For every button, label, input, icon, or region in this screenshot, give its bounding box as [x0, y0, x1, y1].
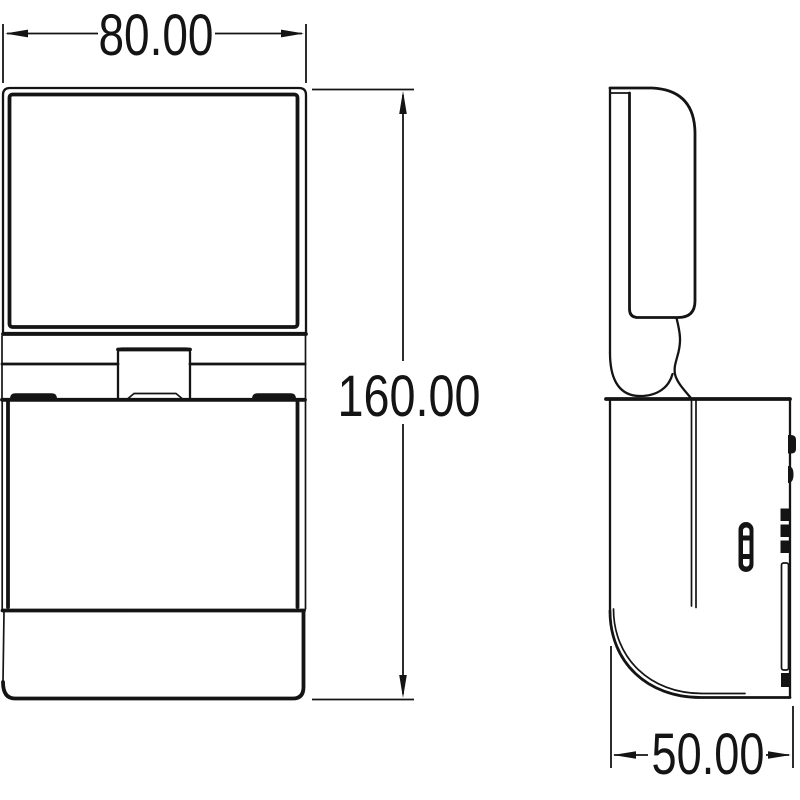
- depth-dim-label: 50.00: [652, 722, 765, 787]
- rear-notch-1: [781, 509, 790, 522]
- rear-rib: [782, 563, 789, 670]
- width-arrow-right: [281, 30, 304, 38]
- height-arrow-top: [399, 91, 407, 114]
- dimension-height: 160.00: [312, 90, 481, 700]
- hinge-tab: [118, 349, 190, 400]
- dimension-depth: 50.00: [611, 646, 793, 787]
- rear-block: [781, 673, 790, 687]
- height-arrow-bottom: [399, 675, 407, 698]
- height-dim-label: 160.00: [338, 364, 481, 429]
- side-body-bottom-inner: [614, 609, 746, 694]
- skirt-outline: [3, 612, 304, 699]
- usb-slot-inner: [743, 528, 750, 567]
- depth-arrow-right: [768, 751, 791, 759]
- body-top-tab-left: [10, 393, 57, 399]
- front-view: [2, 88, 306, 699]
- skirt-left-edge: [3, 612, 4, 682]
- rear-edge-features: [781, 435, 797, 687]
- usb-slot-notch-top: [743, 536, 751, 541]
- usb-slot-notch-bottom: [743, 554, 751, 559]
- side-view: [606, 88, 796, 698]
- hinge-tab-wedge: [128, 394, 182, 399]
- width-arrow-left: [5, 30, 28, 38]
- rear-bump: [788, 466, 794, 483]
- hinge-knuckle: [610, 353, 673, 396]
- usb-slot: [739, 522, 754, 572]
- front-screen: [10, 95, 298, 328]
- side-panel-outline: [610, 88, 695, 318]
- width-dim-label: 80.00: [99, 3, 214, 68]
- rear-notch-2: [781, 525, 790, 538]
- hinge-stem-curve: [675, 318, 691, 398]
- dimension-width: 80.00: [3, 3, 306, 83]
- depth-arrow-left: [613, 751, 636, 759]
- rear-notch-3: [781, 541, 790, 554]
- rear-tab: [788, 435, 796, 454]
- front-panel-outline: [3, 88, 306, 333]
- technical-drawing: 80.00 160.00 50.00: [0, 0, 800, 800]
- body-top-tab-right: [252, 393, 296, 399]
- side-body-bottom-outer: [610, 611, 790, 698]
